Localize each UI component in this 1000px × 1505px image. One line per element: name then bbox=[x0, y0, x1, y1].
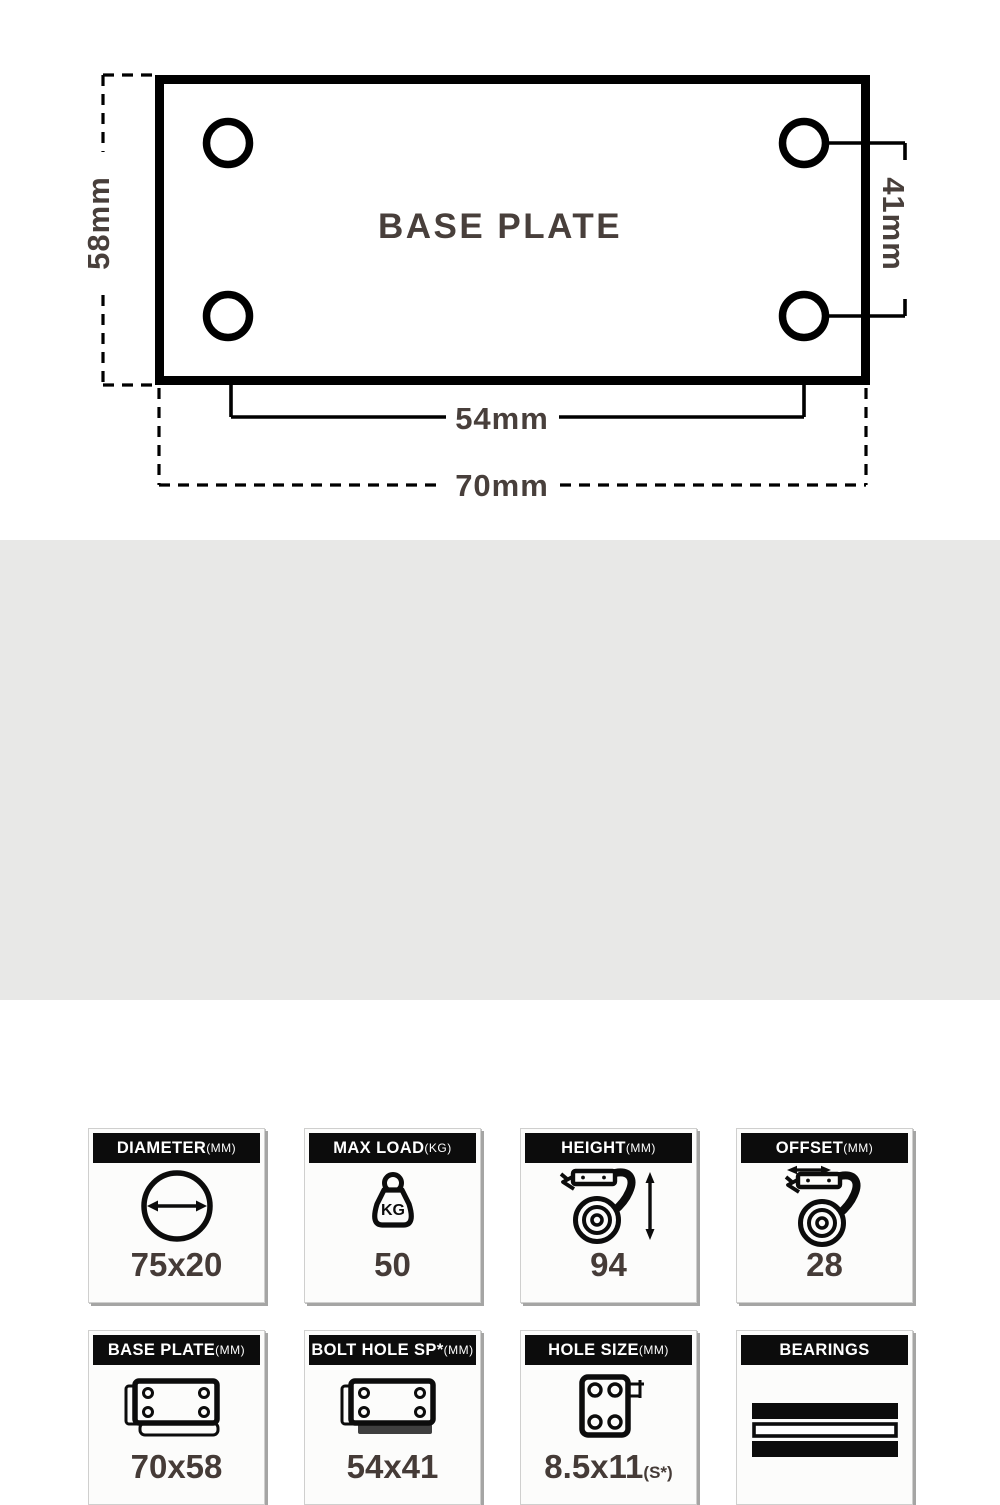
card-header-unit: (MM) bbox=[639, 1343, 669, 1357]
card-value: 75x20 bbox=[131, 1246, 223, 1283]
card-header: OFFSET(MM) bbox=[741, 1133, 908, 1163]
bolt-hole-top-left bbox=[207, 122, 250, 165]
spec-cards-grid: DIAMETER(MM) 75x20 MAX LOAD(KG) bbox=[88, 1128, 913, 1505]
spec-card-offset: OFFSET(MM) 28 bbox=[736, 1128, 913, 1303]
card-header-unit: (MM) bbox=[843, 1141, 873, 1155]
card-header: HOLE SIZE(MM) bbox=[525, 1335, 692, 1365]
bolt-hole-bottom-left bbox=[207, 295, 250, 338]
spec-card-bolt-hole-spacing: BOLT HOLE SP*(MM) 54x41 bbox=[304, 1330, 481, 1505]
card-header: BASE PLATE(MM) bbox=[93, 1335, 260, 1365]
spec-card-diameter: DIAMETER(MM) 75x20 bbox=[88, 1128, 265, 1303]
kg-icon-text: KG bbox=[381, 1202, 405, 1219]
max-load-icon: KG bbox=[357, 1169, 429, 1243]
height-icon bbox=[558, 1165, 660, 1247]
card-header: BEARINGS bbox=[741, 1335, 908, 1365]
card-header: HEIGHT(MM) bbox=[525, 1133, 692, 1163]
card-header-label: BEARINGS bbox=[779, 1341, 869, 1360]
base-plate-icon bbox=[120, 1374, 234, 1442]
spec-card-bearings: BEARINGS bbox=[736, 1330, 913, 1505]
spec-card-max-load: MAX LOAD(KG) KG 50 bbox=[304, 1128, 481, 1303]
spec-card-base-plate: BASE PLATE(MM) 70x58 bbox=[88, 1330, 265, 1505]
card-value: 94 bbox=[590, 1246, 627, 1283]
bolt-hole-spacing-icon bbox=[336, 1374, 450, 1442]
card-header: MAX LOAD(KG) bbox=[309, 1133, 476, 1163]
card-header-label: BOLT HOLE SP* bbox=[311, 1341, 443, 1360]
card-header-unit: (MM) bbox=[626, 1141, 656, 1155]
diameter-icon bbox=[137, 1166, 217, 1246]
specs-section: DIAMETER(MM) 75x20 MAX LOAD(KG) bbox=[0, 540, 1000, 1000]
diagram-section: BASE PLATE 58mm 41mm 54mm 70mm bbox=[0, 0, 1000, 540]
card-header-label: OFFSET bbox=[776, 1139, 843, 1158]
card-value: 54x41 bbox=[347, 1448, 439, 1485]
card-header-label: HEIGHT bbox=[561, 1139, 626, 1158]
card-header-unit: (MM) bbox=[215, 1343, 245, 1357]
offset-icon bbox=[782, 1164, 868, 1248]
dim-label-70mm: 70mm bbox=[432, 466, 572, 506]
card-header-label: DIAMETER bbox=[117, 1139, 206, 1158]
card-header-label: MAX LOAD bbox=[333, 1139, 424, 1158]
bolt-hole-bottom-right bbox=[783, 295, 826, 338]
card-header-unit: (MM) bbox=[444, 1343, 474, 1357]
hole-size-icon bbox=[566, 1372, 652, 1444]
card-value-suffix: (S*) bbox=[643, 1463, 672, 1482]
dim-label-54mm: 54mm bbox=[432, 399, 572, 439]
card-header: DIAMETER(MM) bbox=[93, 1133, 260, 1163]
card-value: 8.5x11 bbox=[544, 1448, 643, 1485]
card-header-label: HOLE SIZE bbox=[548, 1341, 639, 1360]
card-value: 28 bbox=[806, 1246, 843, 1283]
dim-label-58mm: 58mm bbox=[79, 153, 119, 293]
bearings-icon bbox=[750, 1389, 900, 1467]
base-plate-diagram bbox=[0, 0, 1000, 540]
card-value: 70x58 bbox=[131, 1448, 223, 1485]
card-header: BOLT HOLE SP*(MM) bbox=[309, 1335, 476, 1365]
plate-title: BASE PLATE bbox=[320, 206, 680, 248]
card-header-unit: (KG) bbox=[424, 1141, 451, 1155]
card-value: 50 bbox=[374, 1246, 411, 1283]
bolt-hole-top-right bbox=[783, 122, 826, 165]
spec-card-hole-size: HOLE SIZE(MM) 8.5x11(S*) bbox=[520, 1330, 697, 1505]
spec-card-height: HEIGHT(MM) 94 bbox=[520, 1128, 697, 1303]
card-header-unit: (MM) bbox=[206, 1141, 236, 1155]
dim-label-41mm: 41mm bbox=[873, 154, 913, 294]
card-header-label: BASE PLATE bbox=[108, 1341, 215, 1360]
